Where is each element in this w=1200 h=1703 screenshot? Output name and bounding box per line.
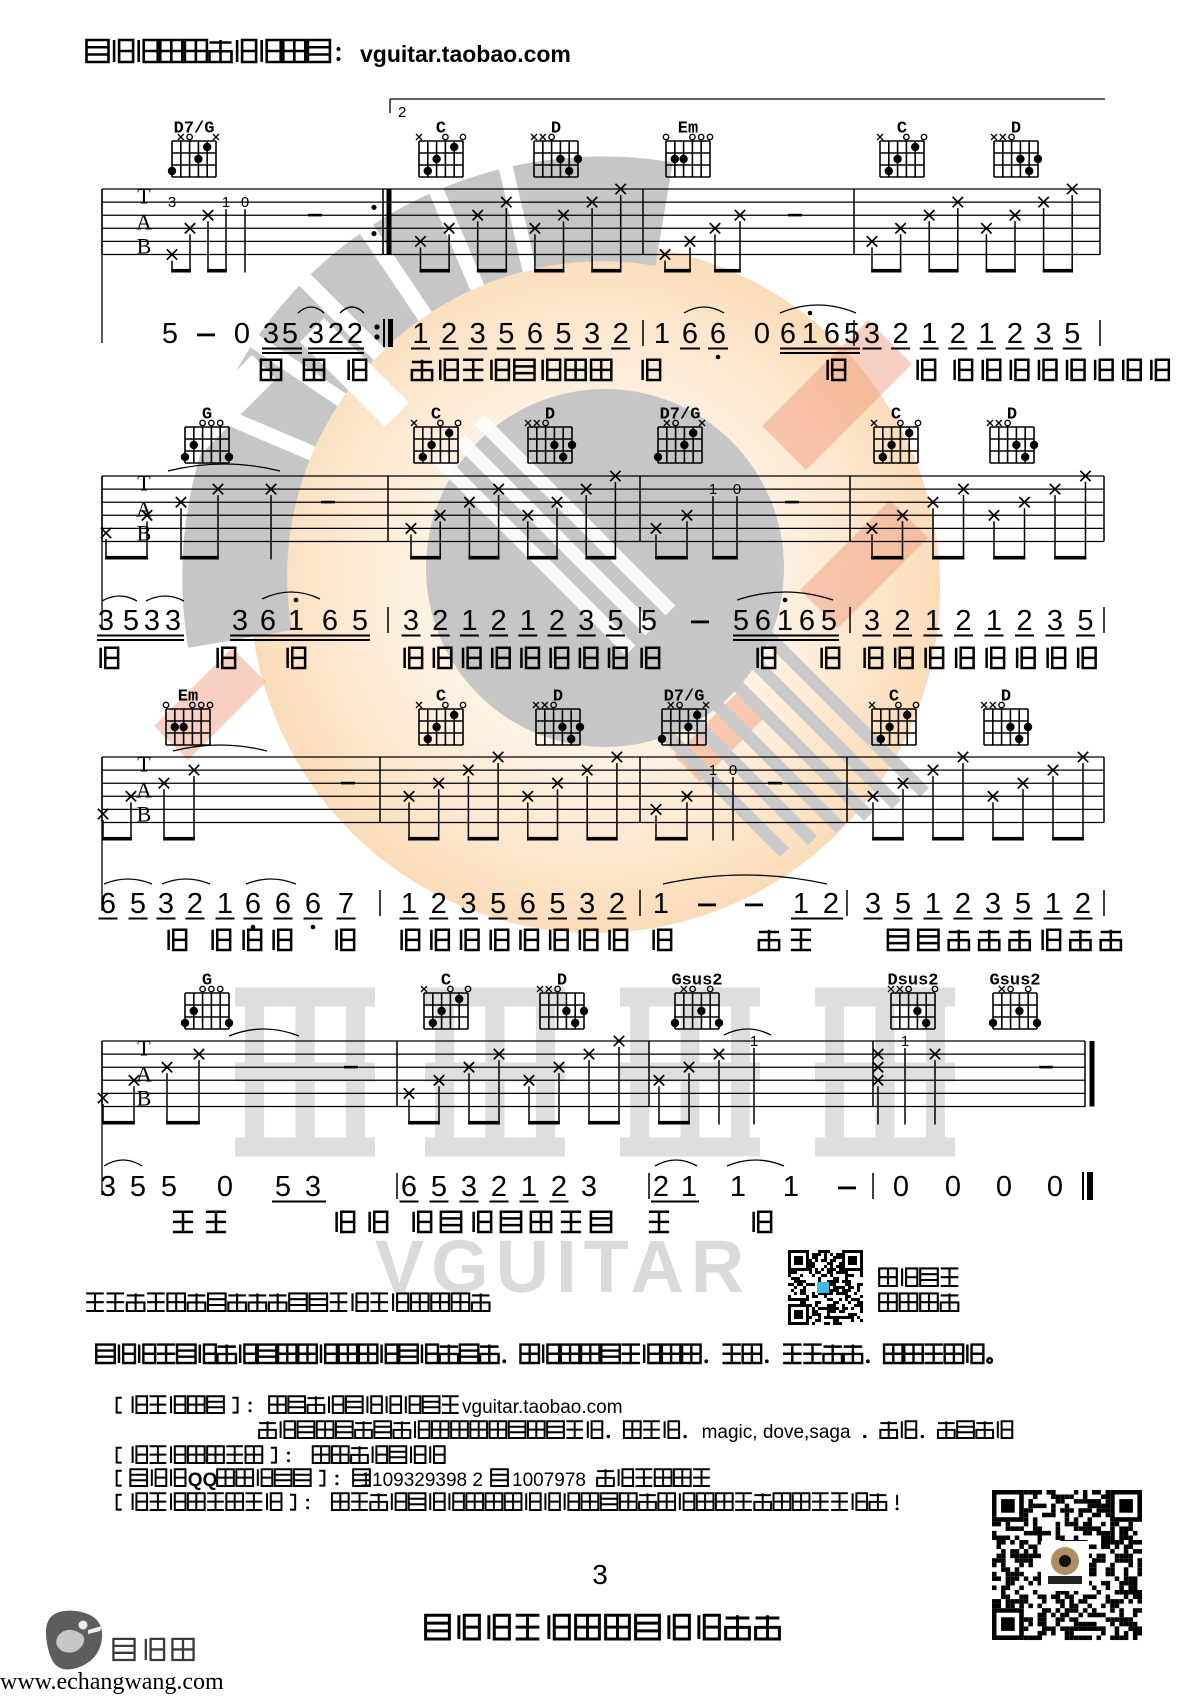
svg-text:T: T [137, 752, 151, 777]
svg-text:1: 1 [802, 318, 818, 350]
svg-text:vguitar.taobao.com: vguitar.taobao.com [360, 41, 571, 67]
svg-text:1: 1 [730, 1171, 746, 1203]
svg-text:5: 5 [844, 318, 860, 350]
svg-text:1: 1 [520, 605, 536, 637]
svg-text:1: 1 [978, 318, 994, 350]
svg-text:5: 5 [641, 605, 657, 637]
svg-text:6: 6 [520, 888, 536, 920]
svg-text:B: B [137, 234, 152, 259]
svg-text:3: 3 [158, 888, 174, 920]
svg-text:1: 1 [681, 1171, 697, 1203]
svg-text:0: 0 [996, 1171, 1012, 1203]
svg-text:1: 1 [412, 318, 428, 350]
svg-text:3: 3 [579, 888, 595, 920]
svg-text:2: 2 [491, 605, 507, 637]
svg-text:5: 5 [549, 888, 565, 920]
svg-text:0: 0 [893, 1171, 909, 1203]
svg-text:2: 2 [549, 605, 565, 637]
svg-text:5: 5 [1064, 318, 1080, 350]
svg-text:5: 5 [162, 318, 178, 350]
svg-text:6: 6 [824, 318, 840, 350]
svg-text:2: 2 [347, 318, 363, 350]
svg-text:1: 1 [921, 318, 937, 350]
svg-text:6: 6 [780, 318, 796, 350]
svg-text:D: D [551, 120, 561, 139]
svg-text:0: 0 [1047, 1171, 1063, 1203]
svg-text:2: 2 [609, 888, 625, 920]
svg-text:1: 1 [925, 605, 941, 637]
svg-text:Gsus2: Gsus2 [671, 972, 722, 991]
svg-text:6: 6 [260, 605, 276, 637]
svg-text:6: 6 [755, 605, 771, 637]
svg-text:A: A [136, 778, 152, 803]
svg-text:D: D [557, 972, 567, 991]
svg-text:A: A [136, 210, 152, 235]
svg-text:6: 6 [100, 888, 116, 920]
svg-text:0: 0 [234, 318, 250, 350]
svg-text:3: 3 [581, 1171, 597, 1203]
svg-text:1: 1 [925, 888, 941, 920]
svg-text:G: G [202, 972, 212, 991]
svg-text:5: 5 [1077, 605, 1093, 637]
svg-text:1007978: 1007978 [512, 1470, 586, 1491]
svg-text:6: 6 [401, 1171, 417, 1203]
svg-text:2: 2 [894, 605, 910, 637]
svg-text:C: C [431, 406, 441, 425]
svg-text:1: 1 [461, 605, 477, 637]
svg-text:2: 2 [823, 888, 839, 920]
svg-text:3: 3 [305, 1171, 321, 1203]
svg-text:3: 3 [232, 605, 248, 637]
svg-text:2: 2 [551, 1171, 567, 1203]
svg-text:C: C [441, 972, 451, 991]
svg-text:0: 0 [733, 481, 741, 498]
svg-text:1: 1 [653, 888, 669, 920]
svg-text:5: 5 [895, 888, 911, 920]
svg-text:1: 1 [401, 888, 417, 920]
svg-text:3: 3 [1036, 318, 1052, 350]
svg-text:3: 3 [985, 888, 1001, 920]
svg-text:1: 1 [793, 888, 809, 920]
svg-text:1: 1 [222, 194, 230, 211]
svg-text:3: 3 [100, 1171, 116, 1203]
svg-text:5: 5 [282, 318, 298, 350]
svg-text:2: 2 [187, 888, 203, 920]
svg-text:0: 0 [754, 318, 770, 350]
svg-text:6: 6 [710, 318, 726, 350]
svg-text:Gsus2: Gsus2 [989, 972, 1040, 991]
svg-text:6: 6 [305, 888, 321, 920]
svg-text:2: 2 [441, 318, 457, 350]
svg-text:www.echangwang.com: www.echangwang.com [0, 1669, 224, 1695]
svg-text:5: 5 [733, 605, 749, 637]
svg-text:T: T [137, 1036, 151, 1061]
svg-text:1: 1 [654, 318, 670, 350]
svg-text:0: 0 [729, 762, 737, 779]
svg-text:5: 5 [275, 1171, 291, 1203]
svg-text:5: 5 [490, 888, 506, 920]
svg-text:3: 3 [1047, 605, 1063, 637]
svg-text:A: A [136, 1062, 152, 1087]
svg-text:2: 2 [431, 888, 447, 920]
svg-text:2: 2 [432, 605, 448, 637]
svg-text:1: 1 [521, 1171, 537, 1203]
svg-text:2: 2 [955, 605, 971, 637]
svg-text:C: C [889, 688, 899, 707]
svg-text:1: 1 [750, 1033, 758, 1050]
svg-text:T: T [137, 184, 151, 209]
svg-text:D: D [1001, 688, 1011, 707]
svg-text:3: 3 [864, 605, 880, 637]
svg-text:3: 3 [470, 318, 486, 350]
svg-text:magic, dove,saga: magic, dove,saga [702, 1422, 851, 1443]
svg-text:C: C [891, 406, 901, 425]
svg-text:D: D [545, 406, 555, 425]
svg-text:3: 3 [98, 605, 114, 637]
svg-text:vguitar.taobao.com: vguitar.taobao.com [462, 1397, 623, 1418]
svg-text:5: 5 [821, 605, 837, 637]
svg-text:3: 3 [165, 605, 181, 637]
svg-text:Dsus2: Dsus2 [887, 972, 938, 991]
svg-text:1: 1 [709, 481, 717, 498]
svg-text:6: 6 [682, 318, 698, 350]
svg-text:QQ: QQ [188, 1470, 218, 1491]
svg-text:D: D [553, 688, 563, 707]
svg-text:3: 3 [592, 1559, 608, 1590]
svg-text:5: 5 [1015, 888, 1031, 920]
svg-text:3: 3 [461, 1171, 477, 1203]
svg-text:2: 2 [893, 318, 909, 350]
svg-text:1: 1 [1045, 888, 1061, 920]
svg-text:2: 2 [398, 104, 406, 121]
svg-text:3: 3 [865, 888, 881, 920]
svg-text:B: B [137, 521, 152, 546]
svg-text:1: 1 [709, 762, 717, 779]
svg-text:C: C [436, 120, 446, 139]
svg-text:3: 3 [864, 318, 880, 350]
svg-text:6: 6 [322, 605, 338, 637]
svg-text:3: 3 [584, 318, 600, 350]
svg-text:2: 2 [328, 318, 344, 350]
svg-text:2: 2 [1007, 318, 1023, 350]
svg-text:2: 2 [955, 888, 971, 920]
svg-text:5: 5 [123, 605, 139, 637]
svg-text:2: 2 [1075, 888, 1091, 920]
svg-text:5: 5 [431, 1171, 447, 1203]
svg-text:2: 2 [491, 1171, 507, 1203]
svg-text:6: 6 [799, 605, 815, 637]
svg-text:5: 5 [130, 888, 146, 920]
svg-text:B: B [137, 1086, 152, 1111]
svg-text:6: 6 [245, 888, 261, 920]
svg-text:1: 1 [901, 1033, 909, 1050]
svg-text:5: 5 [161, 1171, 177, 1203]
svg-text:5: 5 [352, 605, 368, 637]
svg-text:1: 1 [777, 605, 793, 637]
svg-text:C: C [897, 120, 907, 139]
svg-text:3: 3 [308, 318, 324, 350]
svg-text:7: 7 [338, 888, 354, 920]
svg-text:B: B [137, 802, 152, 827]
svg-text:5: 5 [607, 605, 623, 637]
svg-text:2: 2 [950, 318, 966, 350]
svg-text:3: 3 [144, 605, 160, 637]
svg-text:6: 6 [527, 318, 543, 350]
svg-text:C: C [436, 688, 446, 707]
svg-text:1: 1 [986, 605, 1002, 637]
svg-text:D: D [1011, 120, 1021, 139]
svg-text:1: 1 [783, 1171, 799, 1203]
svg-text:0: 0 [241, 194, 249, 211]
svg-text:T: T [137, 471, 151, 496]
svg-text:109329398 2: 109329398 2 [372, 1470, 483, 1491]
svg-text:5: 5 [555, 318, 571, 350]
svg-text:5: 5 [130, 1171, 146, 1203]
svg-text:2: 2 [653, 1171, 669, 1203]
svg-text:2: 2 [1016, 605, 1032, 637]
svg-text:G: G [202, 406, 212, 425]
svg-text:1: 1 [288, 605, 304, 637]
svg-text:1: 1 [217, 888, 233, 920]
svg-text:3: 3 [460, 888, 476, 920]
svg-text:3: 3 [578, 605, 594, 637]
svg-text:2: 2 [613, 318, 629, 350]
svg-text:6: 6 [275, 888, 291, 920]
svg-text:D: D [1007, 406, 1017, 425]
svg-text:3: 3 [168, 194, 176, 211]
svg-text:0: 0 [945, 1171, 961, 1203]
svg-text:5: 5 [498, 318, 514, 350]
svg-text:0: 0 [217, 1171, 233, 1203]
svg-text:3: 3 [403, 605, 419, 637]
svg-text:3: 3 [263, 318, 279, 350]
